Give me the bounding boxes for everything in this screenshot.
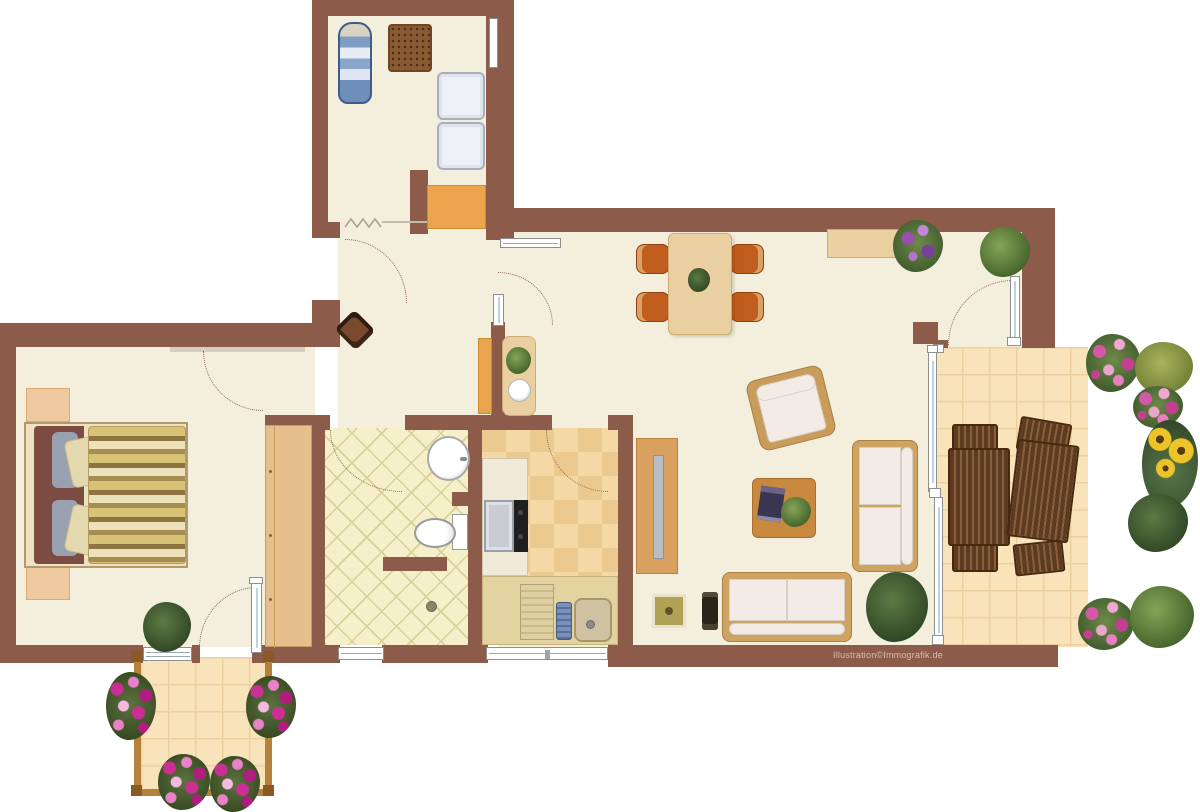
wall-bottom-left bbox=[0, 645, 143, 663]
hall-living-door-leaf bbox=[493, 294, 504, 326]
wall-bath-stub-h bbox=[383, 557, 447, 571]
wall-bedroom-bath bbox=[312, 420, 325, 647]
terrace-door-leaf bbox=[1010, 276, 1020, 346]
double-bed bbox=[24, 422, 188, 568]
entry-threshold-zigzag bbox=[344, 216, 384, 230]
garden-table-left bbox=[948, 448, 1010, 546]
basin-tap bbox=[460, 457, 467, 461]
radiator bbox=[500, 238, 561, 248]
wall-left-outer bbox=[0, 323, 16, 663]
wall-utility-top bbox=[312, 0, 514, 16]
kitchen-faucet bbox=[586, 620, 595, 629]
wall-utility-left bbox=[312, 0, 328, 238]
wall-bath-stub-v bbox=[452, 492, 468, 506]
balcony-post bbox=[263, 651, 274, 662]
small-device bbox=[702, 592, 718, 630]
bed-duvet-striped bbox=[88, 426, 186, 564]
shower-drain bbox=[426, 601, 437, 612]
terrace-door-cap bbox=[1007, 337, 1021, 346]
tv-lowboard bbox=[636, 438, 678, 574]
watermark-text: Illustration©Immografik.de bbox=[833, 650, 943, 660]
terrace-pink-bush-top bbox=[1086, 334, 1140, 392]
wall-utility-stub bbox=[410, 170, 428, 234]
garden-chair bbox=[1012, 539, 1065, 576]
wardrobe-handle bbox=[269, 534, 272, 537]
sofa-vertical bbox=[852, 440, 918, 572]
nightstand-top bbox=[26, 388, 70, 422]
coffee-table-plant bbox=[781, 497, 811, 527]
flat-tv bbox=[653, 455, 664, 559]
terrace-glass-wall-lower bbox=[934, 497, 943, 643]
dining-chair bbox=[636, 292, 670, 322]
wardrobe-handle bbox=[269, 470, 272, 473]
glass-wall-cap-top bbox=[927, 345, 938, 353]
terrace-glass-wall-upper bbox=[928, 352, 937, 492]
bathroom-window bbox=[338, 647, 384, 660]
coffee-table bbox=[752, 478, 816, 538]
balcony-door-leaf bbox=[251, 583, 262, 653]
wardrobe bbox=[265, 425, 312, 647]
balcony-flower-box-bottom-left bbox=[158, 754, 210, 810]
balcony-post bbox=[131, 651, 142, 662]
wall-living-top bbox=[486, 208, 1055, 232]
kitchen-cooktop bbox=[514, 500, 528, 552]
balcony-post bbox=[131, 785, 142, 796]
wall-right-upper bbox=[1022, 208, 1055, 348]
utility-shelf bbox=[427, 185, 486, 229]
glass-wall-cap-bottom bbox=[932, 635, 944, 645]
wall-bedroom-top bbox=[0, 323, 340, 347]
washing-machine bbox=[437, 72, 485, 120]
glass-wall-cap-mid bbox=[929, 488, 941, 498]
balcony-flower-box-bottom-right bbox=[210, 756, 260, 812]
nightstand-bottom bbox=[26, 566, 70, 600]
kitchen-oven bbox=[484, 500, 514, 552]
washbasin-round bbox=[427, 436, 470, 481]
dryer bbox=[437, 122, 485, 170]
wall-bath-bottom bbox=[382, 645, 488, 663]
wardrobe-handle bbox=[269, 598, 272, 601]
toilet-bowl bbox=[414, 518, 456, 548]
balcony-flower-box-right bbox=[246, 676, 296, 738]
terrace-leafy-plant bbox=[1128, 494, 1188, 552]
kitchen-window bbox=[486, 647, 608, 660]
wall-bath-kitchen bbox=[468, 428, 482, 647]
stool-square bbox=[652, 594, 686, 628]
kitchen-drainboard bbox=[520, 584, 554, 640]
garden-table-right bbox=[1006, 439, 1079, 544]
wall-corridor-left-top bbox=[312, 222, 340, 238]
dining-chair bbox=[730, 292, 764, 322]
ironing-board bbox=[338, 22, 372, 104]
hall-shoe-shelf bbox=[478, 338, 492, 414]
console-bowl bbox=[508, 379, 531, 402]
balcony-door-cap bbox=[249, 577, 263, 584]
drying-rack bbox=[388, 24, 432, 72]
dining-chair bbox=[730, 244, 764, 274]
dining-chair bbox=[636, 244, 670, 274]
kitchen-dish-rack bbox=[556, 602, 572, 640]
sofa-horizontal bbox=[722, 572, 852, 642]
utility-wall-niche bbox=[489, 18, 498, 68]
terrace-pink-bush-bottom bbox=[1078, 598, 1134, 650]
balcony-post bbox=[263, 785, 274, 796]
terrace-green-bush-bottom bbox=[1130, 586, 1194, 648]
wall-kitchen-right bbox=[618, 420, 633, 647]
floor-plan-illustration: Illustration©Immografik.de bbox=[0, 0, 1200, 812]
